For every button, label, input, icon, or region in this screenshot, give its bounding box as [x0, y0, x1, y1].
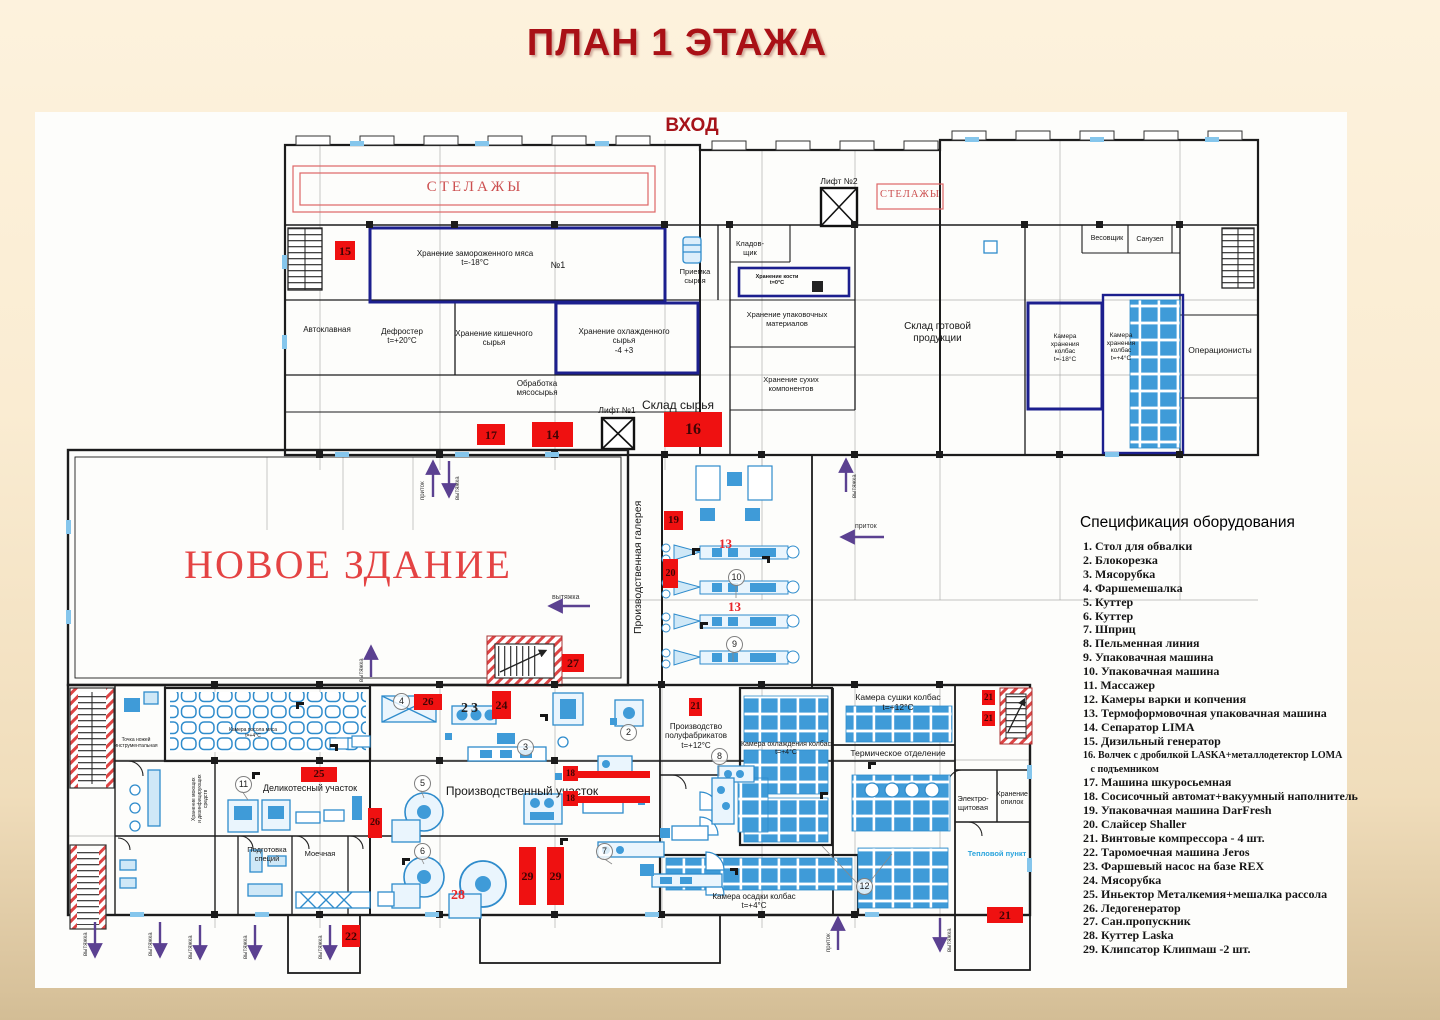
circled-12: 12	[856, 878, 873, 895]
marker-21a: 21	[689, 698, 702, 716]
spec-item: 17. Машина шкуросьемная	[1083, 776, 1388, 790]
marker-26a: 26	[414, 694, 442, 710]
spec-item: 14. Сепаратор LIMA	[1083, 721, 1388, 735]
room-label-autoclave: Автоклавная	[296, 325, 358, 334]
vent-label-exhaust-6: вытяжка	[148, 922, 154, 956]
spec-item: 15. Дизильный генератор	[1083, 735, 1388, 749]
spec-item: 27. Сан.пропускник	[1083, 915, 1388, 929]
room-label-sawdust-storage: Хранение опилок	[992, 791, 1032, 808]
circled-4: 4	[393, 693, 410, 710]
vent-label-supply-2: приток	[855, 523, 877, 530]
marker-21c: 21	[982, 711, 995, 726]
room-label-deli-section: Деликотесный участок	[258, 783, 362, 794]
stairs-prod-left2	[70, 845, 106, 929]
spec-item: 5. Куттер	[1083, 596, 1388, 610]
vent-label-exhaust-1: вытяжка	[455, 462, 461, 500]
room-label-bone-storage: Хранение кости t=0°C	[746, 274, 808, 287]
marker-15: 15	[335, 241, 355, 260]
room-label-raw-intake: Приемка сырья	[672, 268, 718, 286]
room-label-sausage-cooling: Камера охлаждения колбас t=+4°C	[736, 741, 836, 758]
vent-label-exhaust-4: вытяжка	[359, 648, 365, 682]
marker-24: 24	[492, 691, 511, 719]
vent-label-exhaust-8: вытяжка	[243, 925, 249, 959]
circled-8: 8	[711, 748, 728, 765]
marker-29a: 29	[519, 847, 536, 905]
marker-21d: 21	[987, 907, 1023, 923]
spec-item: 19. Упаковачная машина DarFresh	[1083, 804, 1388, 818]
marker-26b: 26	[368, 808, 382, 838]
spec-item: 4. Фаршемешалка	[1083, 582, 1388, 596]
room-label-knife-point: Точка ножей инструментальная	[108, 738, 164, 750]
marker-17: 17	[477, 424, 505, 445]
marker-22: 22	[342, 925, 360, 947]
circled-5: 5	[414, 775, 431, 792]
room-label-meat-processing: Обработка мясосырья	[502, 379, 572, 398]
vent-label-exhaust-9: вытяжка	[318, 925, 324, 959]
room-label-lift2: Лифт №2	[810, 176, 868, 186]
room-label-semifinished: Производство полуфабрикатов t=+12°C	[650, 722, 742, 750]
circled-10: 10	[728, 569, 745, 586]
spec-title: Спецификация оборудования	[1080, 514, 1295, 532]
lift2-icon	[821, 188, 857, 226]
room-label-gut-storage: Хранение кишечного сырья	[450, 329, 538, 348]
room-label-finished-goods: Склад готовой продукции	[885, 321, 990, 345]
room-label-sausage-drying: Камера сушки колбас t=+12°C	[842, 692, 954, 712]
spec-item: 28. Куттер Laska	[1083, 929, 1388, 943]
room-label-packaging-storage: Хранение упаковочных материалов	[733, 311, 841, 329]
spec-item: 3. Мясорубка	[1083, 568, 1388, 582]
room-label-raw-warehouse: Склад сырья	[638, 398, 718, 412]
marker-27: 27	[562, 654, 584, 672]
room-label-chilled-storage: Хранение охлажденного сырья -4 +3	[565, 327, 683, 355]
gallery-label: Производственная галерея	[632, 472, 644, 662]
circled-6: 6	[414, 843, 431, 860]
spec-item: 22. Таромоечная машина Jeros	[1083, 846, 1388, 860]
spec-item: 12. Камеры варки и копчения	[1083, 693, 1388, 707]
spec-item: 11. Массажер	[1083, 679, 1388, 693]
room-label-sausage-cool-store: Камера хранения колбас t=+4°C	[1096, 332, 1146, 363]
spec-item: 10. Упаковачная машина	[1083, 665, 1388, 679]
new-building-label: НОВОЕ ЗДАНИЕ	[183, 541, 513, 588]
marker-29b: 29	[547, 847, 564, 905]
spec-list: 1. Стол для обвалки 2. Блокорезка 3. Мяс…	[1083, 540, 1388, 957]
spec-item: 2. Блокорезка	[1083, 554, 1388, 568]
bone-room-icon	[812, 281, 823, 292]
vent-label-supply-1: приток	[420, 462, 426, 500]
spec-item: 18. Сосисочный автомат+вакуумный наполни…	[1083, 790, 1388, 804]
room-label-washing-room: Моечная	[294, 850, 346, 859]
spec-item: 16. Волчек с дробилкой LASKA+металлодете…	[1083, 749, 1388, 777]
room-label-heating-point: Тепловой пункт	[964, 850, 1030, 859]
marker-18a-bar	[578, 771, 650, 778]
spec-item: 8. Пельменная линия	[1083, 637, 1388, 651]
room-label-shelves-right: СТЕЛАЖЫ	[877, 189, 943, 201]
marker-20: 20	[663, 559, 678, 588]
stairs-hall	[487, 636, 562, 686]
spec-item: 29. Клипсатор Клипмаш -2 шт.	[1083, 943, 1388, 957]
marker-18b: 18	[563, 791, 578, 806]
vent-label-exhaust-7: вытяжка	[188, 925, 194, 959]
room-label-defroster: Дефростер t=+20°C	[372, 327, 432, 346]
marker-19: 19	[664, 511, 683, 530]
marker-28: 28	[451, 888, 465, 904]
circled-11: 11	[235, 776, 252, 793]
marker-13b: 13	[728, 599, 741, 615]
room-label-dry-components: Хранение сухих компонентов	[737, 376, 845, 394]
vent-label-exhaust-5: вытяжка	[83, 922, 89, 956]
spec-item: 1. Стол для обвалки	[1083, 540, 1388, 554]
room-label-detergents-storage: Хранение моющих и дезинфицирующих средст…	[192, 764, 210, 834]
marker-23: 23	[461, 701, 481, 717]
marker-18a: 18	[563, 766, 578, 781]
room-label-electrical-room: Электро- щитовая	[950, 795, 996, 813]
room-label-storekeeper: Кладов- щик	[728, 240, 772, 258]
spec-item: 7. Шприц	[1083, 623, 1388, 637]
vent-label-exhaust-10: вытяжка	[947, 918, 953, 952]
spec-item: 24. Мясорубка	[1083, 874, 1388, 888]
room-label-sausage-settling: Камера осадки колбас t=+4°C	[688, 892, 820, 911]
spec-item: 20. Слайсер Shaller	[1083, 818, 1388, 832]
circled-2: 2	[620, 724, 637, 741]
circled-9: 9	[726, 636, 743, 653]
room-label-no1: №1	[543, 260, 573, 271]
room-label-shelves-left: СТЕЛАЖЫ	[295, 179, 655, 197]
vent-label-supply-3: приток	[826, 918, 832, 952]
circled-3: 3	[517, 739, 534, 756]
slide-floor-plan: { "header": { "title": "ПЛАН 1 ЭТАЖА", "…	[0, 0, 1440, 1020]
marker-21b: 21	[982, 690, 995, 705]
room-label-wc: Санузел	[1130, 236, 1170, 244]
room-label-operators: Операционисты	[1183, 345, 1257, 355]
spec-item: 23. Фаршевый насос на базе REX	[1083, 860, 1388, 874]
room-label-frozen-meat: Хранение замороженного мяса t=-18°C	[400, 249, 550, 268]
room-label-thermal-dept: Термическое отделение	[842, 748, 954, 758]
spec-item: 13. Термоформовочная упаковачная машина	[1083, 707, 1388, 721]
room-label-salting-chamber: Камера посола мяса t=+4°C	[218, 728, 288, 740]
marker-18b-bar	[578, 796, 650, 803]
marker-14: 14	[532, 422, 573, 447]
room-label-weigher: Весовщик	[1083, 235, 1131, 243]
spec-item: 6. Куттер	[1083, 610, 1388, 624]
room-label-sausage-cold-store: Камера хранения колбас t=-18°C	[1036, 333, 1094, 364]
vent-label-exhaust-3: вытяжка	[552, 594, 580, 601]
marker-25: 25	[301, 767, 337, 782]
stairs-prod-right	[1000, 688, 1032, 744]
marker-16: 16	[664, 412, 722, 447]
stairs-old-right	[1222, 228, 1254, 288]
spec-item: 21. Винтовые компрессора - 4 шт.	[1083, 832, 1388, 846]
stairs-old-left	[288, 228, 322, 290]
spec-item: 9. Упаковачная машина	[1083, 651, 1388, 665]
spec-item: 26. Ледогенератор	[1083, 902, 1388, 916]
lift1-icon	[602, 418, 634, 449]
marker-13a: 13	[719, 536, 732, 552]
circled-7: 7	[596, 843, 613, 860]
room-label-spice-prep: Подготовка специй	[238, 846, 296, 864]
spec-item: 25. Иньектор Металкемия+мешалка рассола	[1083, 888, 1388, 902]
vent-label-exhaust-2: вытяжка	[852, 460, 858, 498]
